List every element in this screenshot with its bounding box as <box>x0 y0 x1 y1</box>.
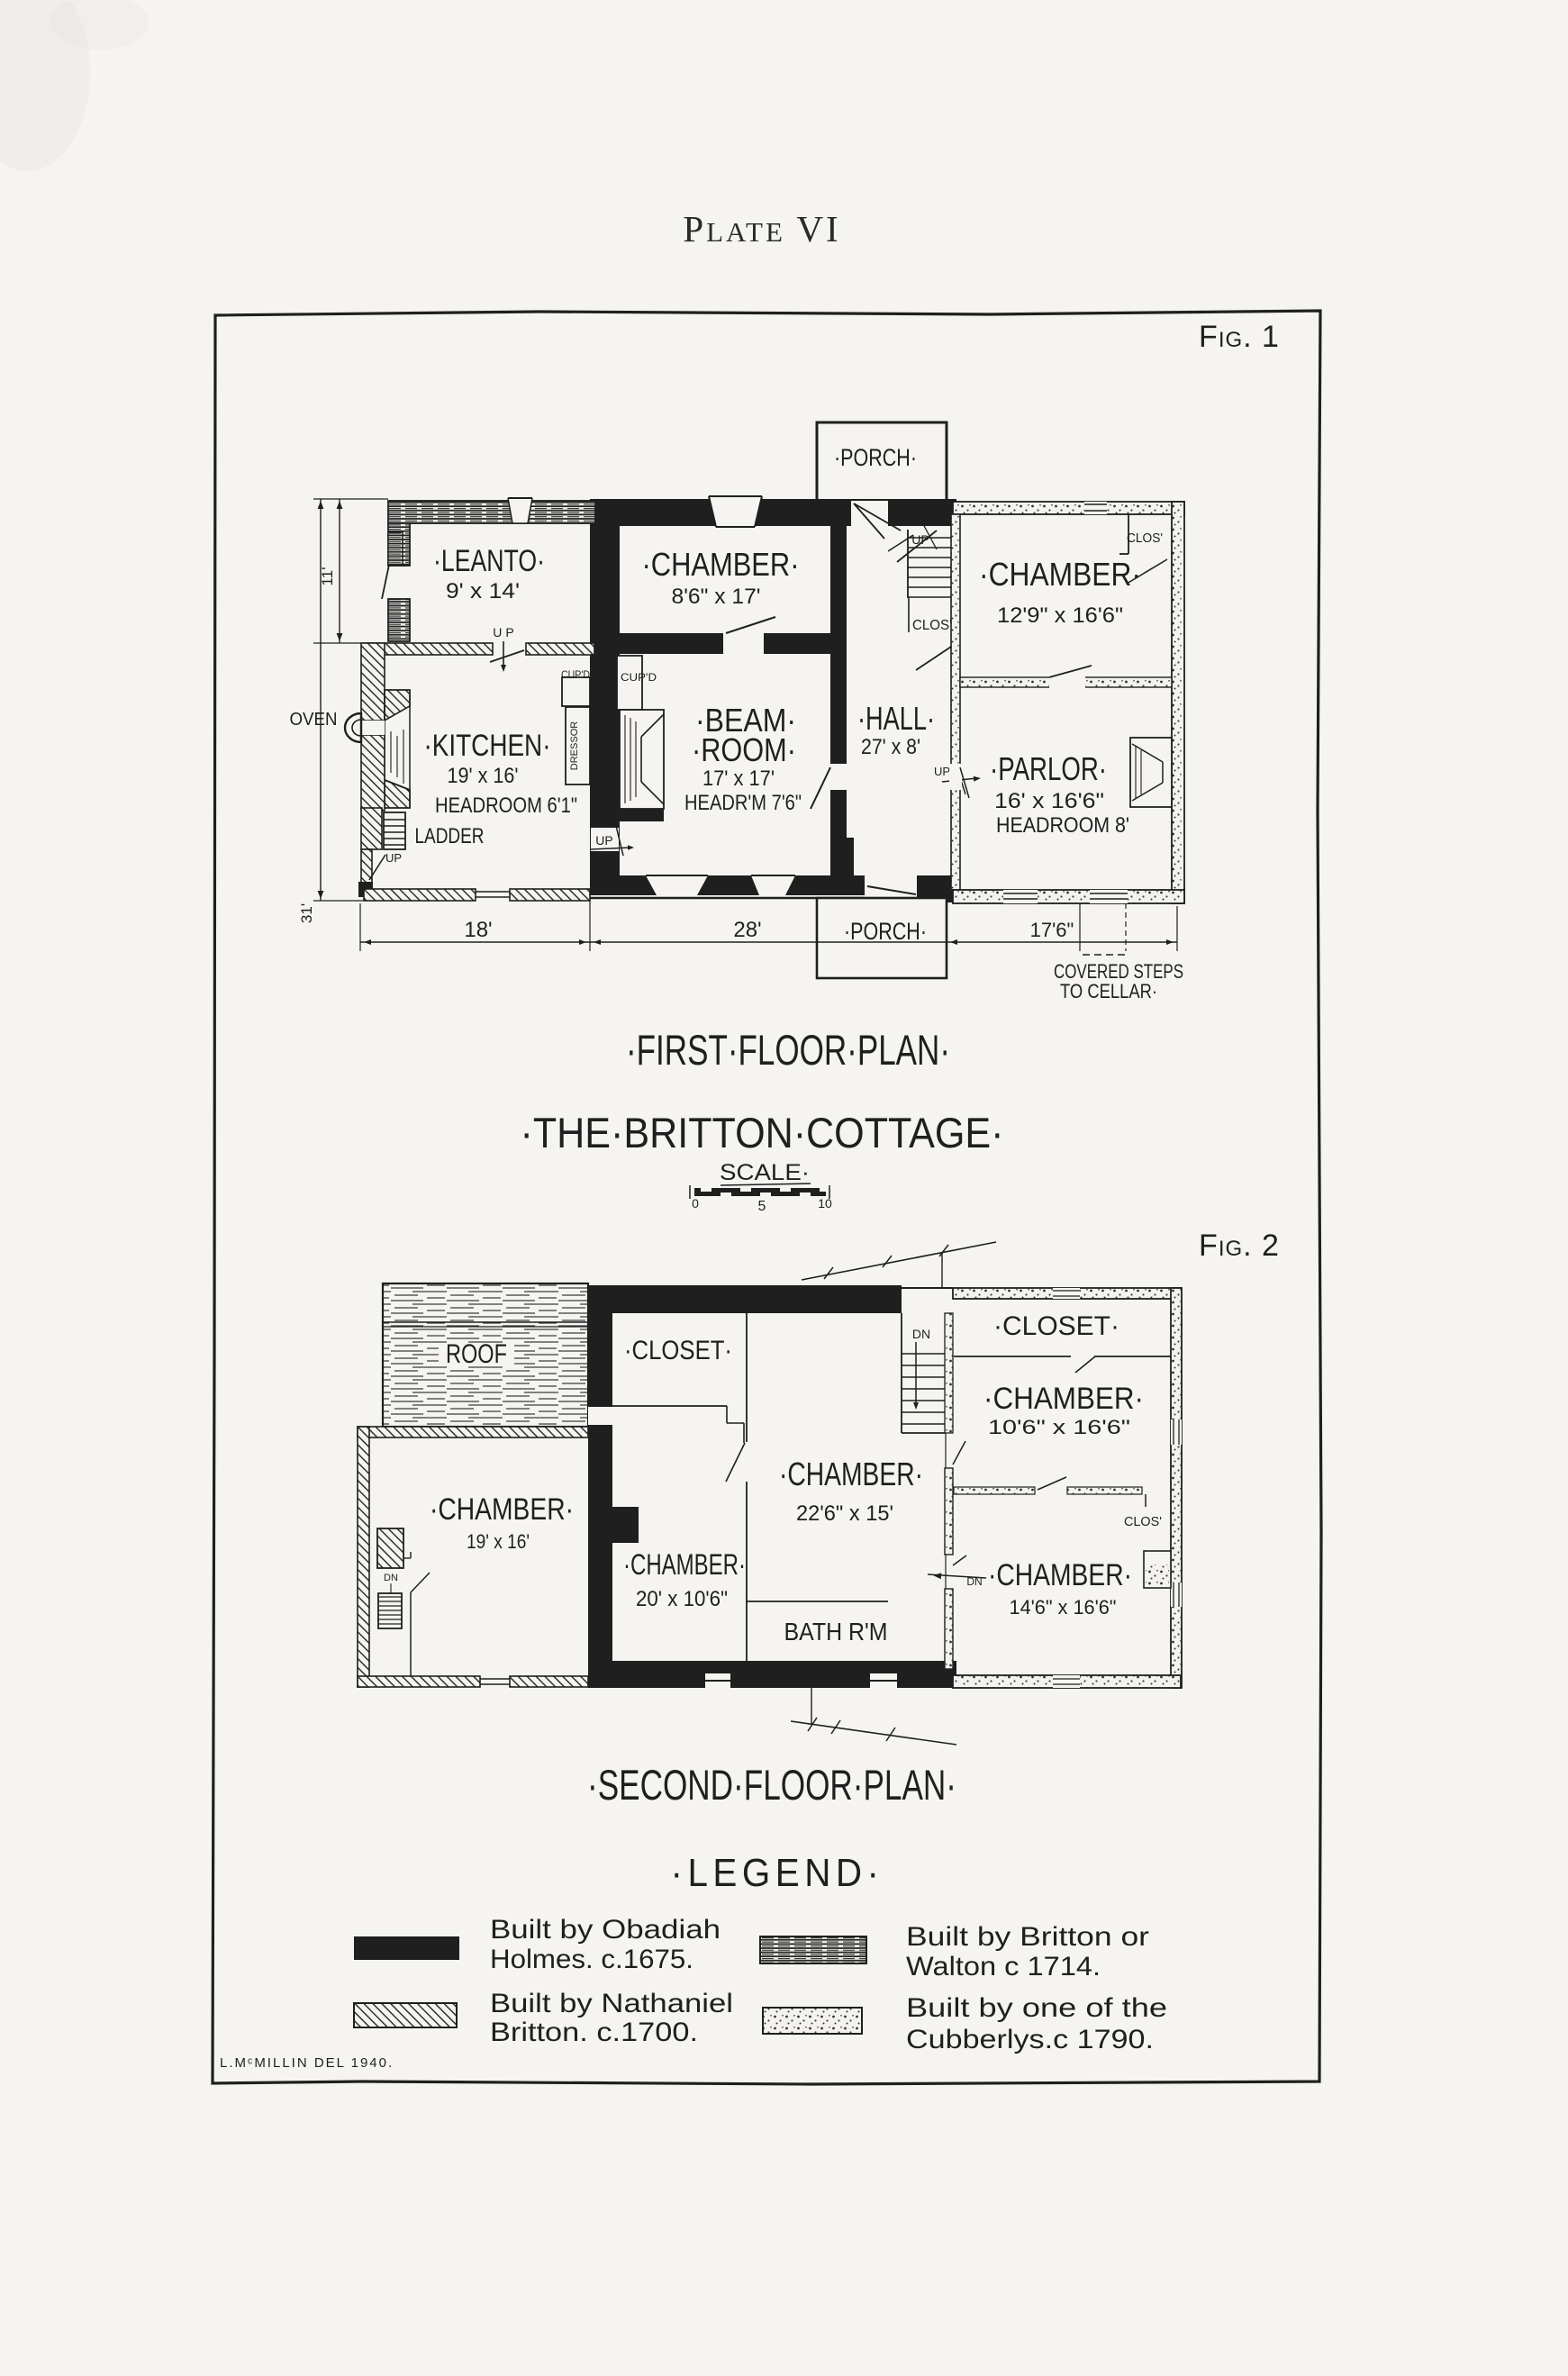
svg-text:BATH R'M: BATH R'M <box>784 1618 888 1646</box>
svg-text:·LEANTO·: ·LEANTO· <box>433 544 545 578</box>
svg-text:·CHAMBER·: ·CHAMBER· <box>979 556 1141 593</box>
svg-text:Holmes. c.1675.: Holmes. c.1675. <box>490 1945 693 1974</box>
svg-text:CLOS': CLOS' <box>1124 1514 1162 1529</box>
svg-text:SCALE·: SCALE· <box>720 1160 810 1185</box>
svg-text:·PORCH·: ·PORCH· <box>834 444 917 471</box>
svg-text:Britton. c.1700.: Britton. c.1700. <box>490 2018 698 2047</box>
svg-text:10: 10 <box>818 1196 832 1211</box>
svg-text:·KITCHEN·: ·KITCHEN· <box>424 729 551 763</box>
svg-text:·LEGEND·: ·LEGEND· <box>671 1851 884 1895</box>
svg-text:·CHAMBER·: ·CHAMBER· <box>779 1456 923 1492</box>
svg-text:CLOS': CLOS' <box>912 618 952 633</box>
svg-text:·CHAMBER·: ·CHAMBER· <box>988 1558 1132 1592</box>
svg-text:10'6" x 16'6": 10'6" x 16'6" <box>988 1416 1130 1438</box>
svg-text:Fig. 1: Fig. 1 <box>1199 320 1280 354</box>
svg-text:CLOS': CLOS' <box>1127 531 1163 546</box>
svg-text:DN: DN <box>384 1573 398 1583</box>
svg-text:14'6" x 16'6": 14'6" x 16'6" <box>1010 1596 1117 1619</box>
svg-text:9' x 14': 9' x 14' <box>446 579 520 603</box>
svg-text:17' x 17': 17' x 17' <box>702 766 775 791</box>
svg-text:UP: UP <box>385 851 402 865</box>
svg-text:·CHAMBER·: ·CHAMBER· <box>623 1548 746 1581</box>
svg-text:18': 18' <box>464 918 492 942</box>
svg-text:31': 31' <box>298 903 315 923</box>
svg-text:·CHAMBER·: ·CHAMBER· <box>642 546 800 583</box>
svg-text:·SECOND·FLOOR·PLAN·: ·SECOND·FLOOR·PLAN· <box>587 1761 956 1809</box>
svg-text:19' x 16': 19' x 16' <box>467 1530 530 1553</box>
svg-text:11': 11' <box>319 567 336 586</box>
svg-text:5: 5 <box>758 1199 766 1214</box>
svg-text:HEADROOM 6'1": HEADROOM 6'1" <box>435 794 577 818</box>
svg-text:·CLOSET·: ·CLOSET· <box>993 1311 1119 1341</box>
svg-text:CUP'D: CUP'D <box>621 671 657 684</box>
svg-text:TO CELLAR·: TO CELLAR· <box>1060 980 1157 1002</box>
svg-text:HEADR'M 7'6": HEADR'M 7'6" <box>684 791 802 815</box>
svg-text:CUP'D: CUP'D <box>561 668 590 681</box>
svg-text:16' x 16'6": 16' x 16'6" <box>994 789 1104 813</box>
svg-text:28': 28' <box>733 918 761 942</box>
svg-text:·PORCH·: ·PORCH· <box>844 918 927 945</box>
svg-text:·THE·BRITTON·COTTAGE·: ·THE·BRITTON·COTTAGE· <box>521 1109 1004 1156</box>
svg-text:DRESSOR: DRESSOR <box>569 721 580 770</box>
svg-text:LADDER: LADDER <box>415 824 485 848</box>
svg-text:·PARLOR·: ·PARLOR· <box>990 750 1107 787</box>
svg-text:19' x 16': 19' x 16' <box>448 764 519 788</box>
svg-text:·CHAMBER·: ·CHAMBER· <box>430 1492 574 1527</box>
svg-text:HEADROOM 8': HEADROOM 8' <box>996 813 1129 838</box>
svg-text:20' x 10'6": 20' x 10'6" <box>636 1587 728 1611</box>
svg-text:DN: DN <box>912 1327 930 1341</box>
svg-text:·CHAMBER·: ·CHAMBER· <box>983 1382 1144 1416</box>
svg-text:Walton c 1714.: Walton c 1714. <box>906 1952 1101 1982</box>
svg-text:Built by one of the: Built by one of the <box>906 1993 1167 2023</box>
svg-text:UP: UP <box>595 833 612 848</box>
svg-text:Fig. 2: Fig. 2 <box>1199 1229 1280 1263</box>
svg-text:·ROOM·: ·ROOM· <box>692 731 796 768</box>
svg-text:·CLOSET·: ·CLOSET· <box>624 1336 732 1365</box>
svg-text:·FIRST·FLOOR·PLAN·: ·FIRST·FLOOR·PLAN· <box>626 1026 950 1074</box>
svg-text:22'6" x 15': 22'6" x 15' <box>796 1501 893 1526</box>
svg-text:DN: DN <box>966 1575 982 1588</box>
svg-text:L.MᶜMILLIN DEL 1940.: L.MᶜMILLIN DEL 1940. <box>220 2055 394 2071</box>
svg-text:12'9" x 16'6": 12'9" x 16'6" <box>997 603 1123 628</box>
svg-text:ROOF: ROOF <box>446 1339 507 1369</box>
svg-text:17'6": 17'6" <box>1030 919 1074 941</box>
svg-text:0: 0 <box>692 1196 699 1211</box>
svg-text:Cubberlys.c 1790.: Cubberlys.c 1790. <box>906 2025 1154 2054</box>
svg-text:Built by Obadiah: Built by Obadiah <box>490 1915 721 1945</box>
svg-text:OVEN: OVEN <box>290 710 338 730</box>
svg-text:8'6" x 17': 8'6" x 17' <box>672 585 761 609</box>
svg-text:UP: UP <box>934 765 950 778</box>
svg-text:Built by Britton or: Built by Britton or <box>906 1922 1149 1952</box>
svg-text:27' x 8': 27' x 8' <box>861 735 920 759</box>
svg-text:·HALL·: ·HALL· <box>857 700 935 737</box>
svg-text:Built by Nathaniel: Built by Nathaniel <box>490 1989 733 2018</box>
svg-text:UP: UP <box>493 625 517 639</box>
